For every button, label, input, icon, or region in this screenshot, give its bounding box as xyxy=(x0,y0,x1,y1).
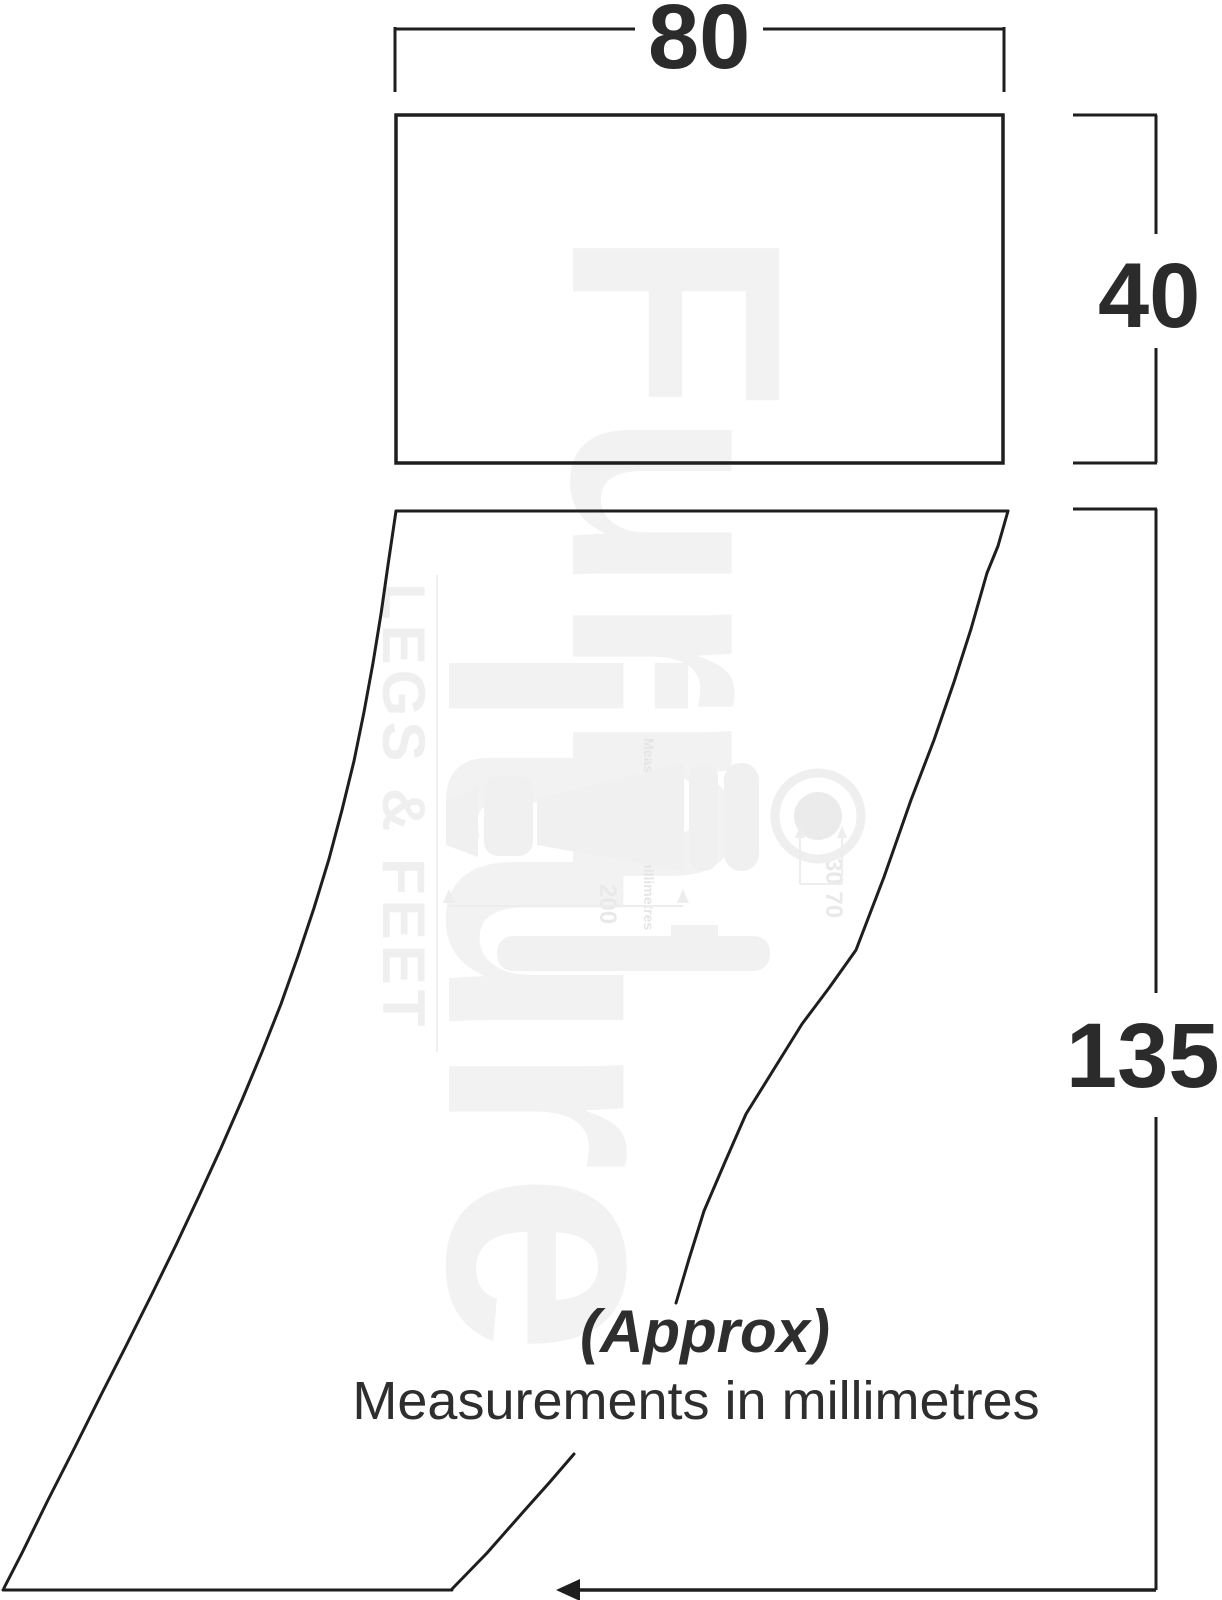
watermark-arrow-icon xyxy=(677,889,689,903)
watermark-leg-ring1 xyxy=(689,763,718,871)
watermark-foot-notch xyxy=(671,925,718,938)
watermark-leg-cone xyxy=(537,763,684,871)
leg-right-curve-lower xyxy=(452,1454,574,1589)
top-block-rectangle xyxy=(396,115,1003,463)
watermark-foot-shape xyxy=(497,936,770,971)
approx-note: (Approx) xyxy=(455,1302,955,1362)
watermark-leg-ring2 xyxy=(724,763,759,871)
leg-height-dimension-label: 135 xyxy=(1066,1010,1220,1102)
block-height-dimension-label: 40 xyxy=(1098,250,1200,342)
leg-right-curve-upper xyxy=(676,511,1008,1303)
units-note: Measurements in millimetres xyxy=(346,1374,1046,1428)
watermark-leg-tip xyxy=(446,787,478,857)
diagram-canvas: Furn iture LEGS & FEET (Approx) Measurem… xyxy=(0,0,1222,1600)
leg-left-curve xyxy=(4,511,396,1588)
watermark-leg-silhouette xyxy=(437,575,861,1052)
watermark-leg-block xyxy=(484,776,533,856)
top-width-dimension-label: 80 xyxy=(648,0,750,83)
watermark-arrow-icon xyxy=(443,889,455,903)
left-arrowhead-icon xyxy=(556,1579,580,1600)
